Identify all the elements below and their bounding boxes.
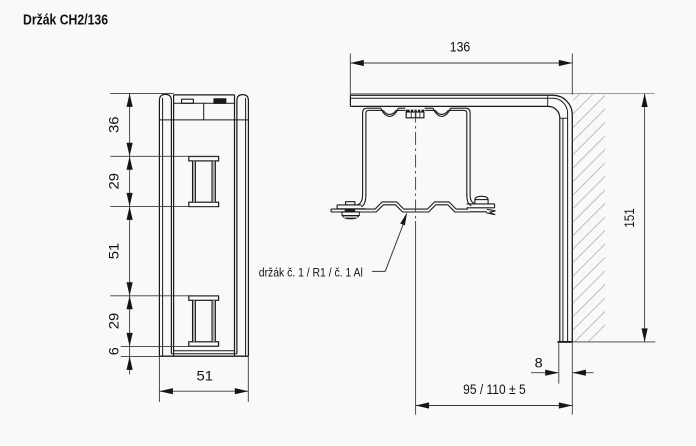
svg-text:151: 151	[622, 208, 638, 228]
svg-text:51: 51	[197, 368, 214, 384]
svg-text:8: 8	[535, 355, 543, 371]
svg-text:držák č. 1 / R1 / č. 1 Al: držák č. 1 / R1 / č. 1 Al	[259, 265, 363, 279]
svg-text:Držák CH2/136: Držák CH2/136	[23, 13, 108, 29]
svg-text:29: 29	[107, 313, 123, 330]
svg-text:29: 29	[107, 173, 123, 190]
svg-text:136: 136	[450, 39, 471, 55]
svg-text:51: 51	[107, 243, 123, 260]
svg-text:95 / 110 ± 5: 95 / 110 ± 5	[463, 382, 526, 398]
svg-text:6: 6	[107, 347, 123, 355]
svg-text:36: 36	[107, 116, 123, 133]
